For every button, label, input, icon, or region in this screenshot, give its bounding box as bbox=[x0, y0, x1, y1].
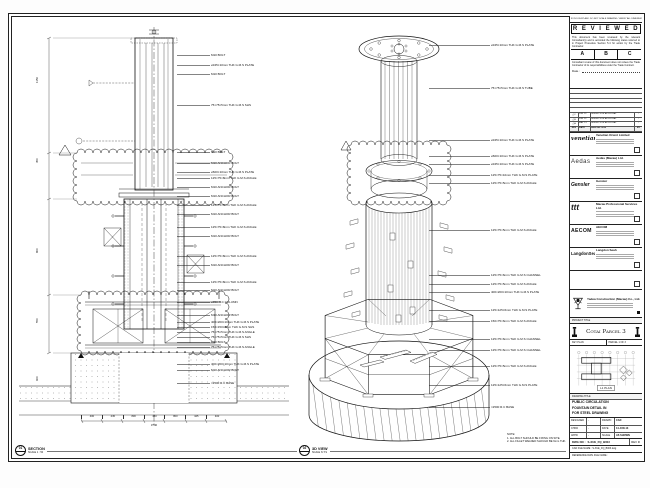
contractor-info: Yadea Construction (Macau) Co., Ltd. bbox=[585, 298, 641, 309]
section-total-dimension: 3740 bbox=[81, 423, 227, 427]
dwg-no-label: DWG NO : bbox=[570, 439, 586, 446]
dimension-value: 400 bbox=[206, 415, 227, 419]
dimension-value: 800 bbox=[123, 415, 144, 419]
revision-header-by: BY bbox=[634, 127, 642, 131]
dwg-no-value: S-XUE_FQ_B003 bbox=[586, 439, 630, 446]
title-block: IF IN DOUBT ASK. DO NOT SCALE DRAWING. V… bbox=[569, 16, 642, 459]
revision-by: - bbox=[634, 122, 642, 126]
sheet-border: M10 BOLT ⌀345×10mm THK G.M.S PLATE M10 B… bbox=[8, 13, 645, 462]
consultant-row: LangdonSeah Langdon Seah bbox=[570, 248, 642, 271]
consultant-list: venetian Venetian Orient Limited Aedas A… bbox=[570, 133, 642, 271]
section-view-tag: 01 SECTION SCALE 1 : 50 bbox=[13, 445, 47, 456]
consultant-checkbox bbox=[634, 216, 640, 222]
consultant-checkbox bbox=[634, 262, 640, 268]
contractor-block: Yadea Construction (Macau) Co., Ltd. bbox=[570, 290, 642, 318]
drawing-title-block: DRAWING TITLE PUBLIC CIRCULATIONFOUNTAIN… bbox=[570, 394, 642, 418]
base-frame bbox=[85, 291, 221, 348]
cad-file-row: CAD FILE NAME : S-XUE_FQ_B003.dwg bbox=[570, 446, 642, 453]
rev-value: C bbox=[638, 439, 642, 446]
revision-by: - bbox=[634, 113, 642, 117]
field-row: DESIGNED - DRAWN CAD bbox=[570, 418, 642, 426]
consultant-row: AECOM AECOM bbox=[570, 225, 642, 248]
consultant-info: Aedas (Macau) Ltd. bbox=[595, 157, 641, 168]
section-view-drawing bbox=[19, 23, 289, 438]
contractor-address bbox=[587, 303, 641, 308]
consultant-info: Venetian Orient Limited bbox=[595, 134, 641, 145]
consultant-address bbox=[596, 231, 641, 236]
stamp-paragraph-2: Consultant review of this document does … bbox=[570, 60, 642, 68]
ornament-pillar-icon bbox=[635, 326, 640, 338]
stamp-title: R E V I E W E D bbox=[571, 24, 641, 34]
consultant-row: ttt Macau Professional Services Ltd. bbox=[570, 202, 642, 225]
revision-header-rev: REV bbox=[570, 127, 578, 131]
field-label: CHKD bbox=[570, 426, 586, 433]
dimension-value: 445 bbox=[185, 415, 206, 419]
dimension-value: 445 bbox=[102, 415, 123, 419]
revision-table: C JUN 13 ISSUED FOR APPROVAL - B JUN 13 … bbox=[570, 89, 642, 133]
section-left-dimensions: 1150450800550600 bbox=[35, 23, 47, 438]
field-row: CHKD - DATE 14-JUN-13 bbox=[570, 426, 642, 434]
consultant-checkbox bbox=[634, 170, 640, 176]
drawing-fields: DESIGNED - DRAWN CAD CHKD - DATE 14-JUN-… bbox=[570, 418, 642, 439]
base-revision-cloud bbox=[77, 291, 229, 355]
stamp-paragraph-1: This document has been reviewed by the r… bbox=[570, 35, 642, 49]
section-bottom-dimensions: 400445800450800445400 bbox=[81, 415, 227, 419]
view-scale: SCALE N.T.S bbox=[312, 451, 328, 454]
tag-rule-line bbox=[13, 451, 566, 452]
keyplan-label: KEY PLAN bbox=[570, 340, 607, 345]
reference-row: REFERENCE DWG FILE NAME : bbox=[570, 453, 642, 459]
stamp-date-row: Date : bbox=[570, 68, 642, 74]
consultant-chec kbox bbox=[634, 281, 640, 287]
consultant-name: Macau Professional Services Ltd. bbox=[596, 203, 641, 210]
flange-plates bbox=[366, 160, 432, 198]
foundation bbox=[71, 353, 237, 403]
dimension-value: 450 bbox=[144, 415, 165, 419]
view-scale: SCALE 1 : 50 bbox=[28, 451, 45, 454]
revision-description: ISSUED FOR APPROVAL bbox=[590, 122, 634, 126]
consultant-row: venetian Venetian Orient Limited bbox=[570, 133, 642, 156]
rev-label: REV bbox=[629, 439, 638, 446]
consultant-row: Aedas Aedas (Macau) Ltd. bbox=[570, 156, 642, 179]
view-tag-circle: 02 bbox=[299, 445, 310, 456]
view-tag-circle: 01 bbox=[15, 445, 26, 456]
consultant-name: Gensler bbox=[596, 180, 641, 184]
field-label: DESIGNED bbox=[570, 418, 586, 425]
consultant-checkbox bbox=[634, 239, 640, 245]
consultant-logo: venetian bbox=[571, 134, 595, 144]
contractor-name: Yadea Construction (Macau) Co., Ltd. bbox=[587, 298, 641, 302]
consultant-logo: LangdonSeah bbox=[571, 249, 595, 259]
revision-description: ISSUED FOR APPROVAL bbox=[590, 118, 634, 122]
stamp-option-c: C bbox=[617, 50, 641, 59]
dimension-value: 800 bbox=[164, 415, 185, 419]
stamp-date-line bbox=[582, 69, 640, 73]
contractor-mark bbox=[637, 311, 641, 315]
revision-triangle-marker bbox=[59, 145, 71, 155]
stamp-status-options: A B C bbox=[571, 49, 641, 60]
revision-letter: A bbox=[570, 122, 578, 126]
top-plate bbox=[359, 36, 439, 62]
review-stamp: R E V I E W E D This document has been r… bbox=[570, 23, 642, 89]
consultant-logo: ttt bbox=[571, 203, 595, 212]
dimension-value: 450 bbox=[35, 158, 39, 163]
tube-bundle bbox=[381, 56, 417, 166]
project-title: Cotai Parcel 3 bbox=[586, 329, 626, 335]
iso-view-drawing bbox=[294, 23, 566, 443]
field-value: 14-JUN-13 bbox=[614, 426, 642, 433]
revision-date: JUN 13 bbox=[578, 113, 590, 117]
dimension-value: 600 bbox=[35, 376, 39, 381]
project-title-band: Cotai Parcel 3 bbox=[570, 324, 642, 340]
consultant-row: Gensler Gensler bbox=[570, 179, 642, 202]
revision-date: MAY 13 bbox=[578, 122, 590, 126]
revision-header-description: DESCRIPTION bbox=[590, 127, 634, 131]
keyplan: L1 PLAN bbox=[570, 346, 642, 394]
consultant-logo: AECOM bbox=[571, 226, 595, 236]
iso-view-tag: 02 3D VIEW SCALE N.T.S bbox=[297, 445, 330, 456]
consultant-name: Venetian Orient Limited bbox=[596, 134, 641, 138]
view-tag-strip: 01 SECTION SCALE 1 : 50 02 3D VIEW SCALE… bbox=[13, 445, 566, 458]
consultant-address bbox=[596, 139, 641, 144]
revision-header-date: DATE bbox=[578, 127, 590, 131]
consultant-name: AECOM bbox=[596, 226, 641, 230]
consultant-address bbox=[596, 254, 641, 259]
consultant-info: Gensler bbox=[595, 180, 641, 191]
weld-symbol bbox=[76, 80, 135, 144]
consultant-name: Langdon Seah bbox=[596, 249, 641, 253]
field-value: CAD bbox=[614, 418, 642, 425]
field-value: - bbox=[586, 418, 600, 425]
consultant-address bbox=[596, 185, 641, 190]
field-value: - bbox=[586, 426, 600, 433]
consultant-empty-row bbox=[570, 271, 642, 290]
drawing-sheet-page: M10 BOLT ⌀345×10mm THK G.M.S PLATE M10 B… bbox=[0, 0, 650, 488]
dimension-value: 400 bbox=[81, 415, 102, 419]
consultant-logo: Aedas bbox=[571, 157, 595, 167]
dimension-value: 550 bbox=[35, 318, 39, 323]
keyplan-sheet: PARCEL 1 OF 3 bbox=[607, 340, 643, 345]
stamp-date-label: Date : bbox=[572, 69, 580, 73]
stamp-option-a: A bbox=[571, 50, 594, 59]
title-block-notice: IF IN DOUBT ASK. DO NOT SCALE DRAWING. V… bbox=[570, 16, 642, 23]
revision-cloud-band bbox=[73, 149, 233, 205]
cad-file-label: CAD FILE NAME : bbox=[572, 447, 592, 450]
dimension-value: 800 bbox=[35, 248, 39, 253]
revision-description: ISSUED FOR APPROVAL bbox=[590, 113, 634, 117]
consultant-info: Langdon Seah bbox=[595, 249, 641, 260]
consultant-checkbox bbox=[634, 193, 640, 199]
consultant-address bbox=[596, 162, 641, 167]
revision-header-row: REV DATE DESCRIPTION BY bbox=[570, 127, 642, 132]
keyplan-drawing: L1 PLAN bbox=[573, 348, 639, 392]
keyplan-caption: L1 PLAN bbox=[600, 386, 612, 390]
field-label: DATE bbox=[600, 426, 614, 433]
contractor-logo-icon bbox=[571, 296, 585, 311]
cad-file-value: S-XUE_FQ_B003.dwg bbox=[592, 447, 616, 450]
consultant-name: Aedas (Macau) Ltd. bbox=[596, 157, 641, 161]
stamp-option-b: B bbox=[594, 50, 618, 59]
revision-by: - bbox=[634, 118, 642, 122]
consultant-checkbox bbox=[634, 147, 640, 153]
iso-triangle-marker bbox=[341, 141, 351, 150]
ornament-pillar-icon bbox=[572, 326, 577, 338]
revision-letter: C bbox=[570, 113, 578, 117]
iso-revision-cloud bbox=[347, 141, 451, 205]
fluted-column bbox=[366, 193, 432, 335]
field-label: DRAWN bbox=[600, 418, 614, 425]
revision-letter: B bbox=[570, 118, 578, 122]
revision-date: JUN 13 bbox=[578, 118, 590, 122]
consultant-logo: Gensler bbox=[571, 180, 595, 190]
drawing-number-row: DWG NO : S-XUE_FQ_B003 REV C bbox=[570, 439, 642, 446]
drawing-title-line: FOR STEEL DRAWING bbox=[570, 411, 642, 417]
consultant-info: AECOM bbox=[595, 226, 641, 237]
dimension-value: 1150 bbox=[35, 77, 39, 83]
